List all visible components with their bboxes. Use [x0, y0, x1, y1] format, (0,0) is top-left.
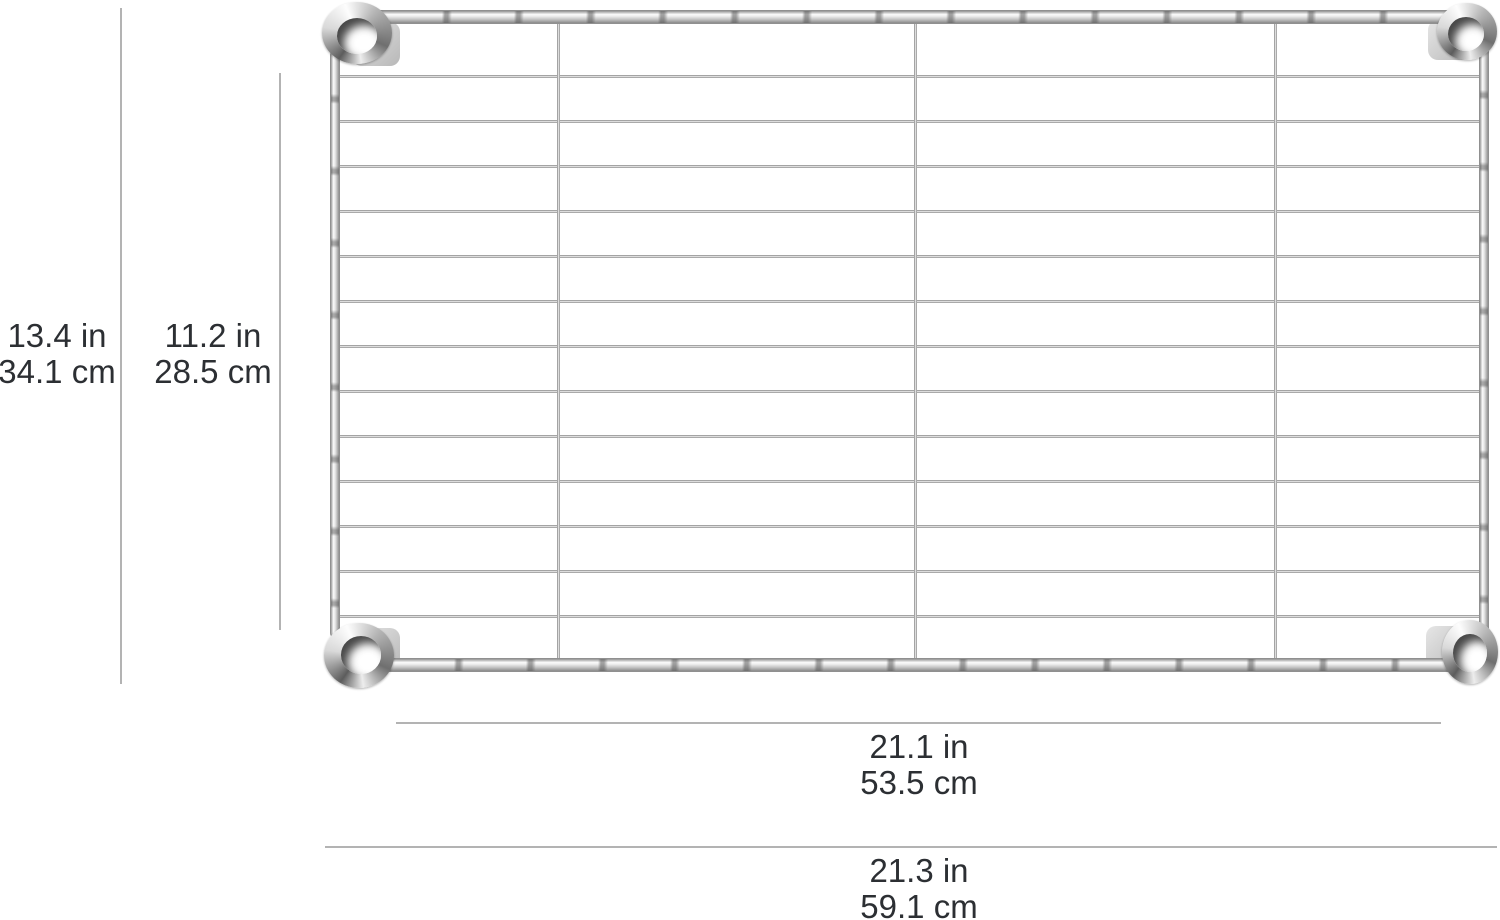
- inner-height-centimeters: 28.5 cm: [145, 354, 281, 390]
- shelf-horizontal-wire: [339, 120, 1481, 123]
- collar-opening: [341, 636, 382, 674]
- corner-collar-bottom-right: [1442, 620, 1498, 684]
- collar-opening: [1448, 17, 1484, 51]
- shelf-horizontal-wire: [339, 525, 1481, 528]
- corner-collar-bottom-left: [324, 623, 394, 688]
- shelf-horizontal-wire: [339, 480, 1481, 483]
- shelf-horizontal-wire: [339, 165, 1481, 168]
- dimension-label-outer-height: 13.4 in 34.1 cm: [0, 318, 126, 390]
- shelf-left-rail: [330, 50, 340, 638]
- dimension-diagram: 13.4 in 34.1 cm 11.2 in 28.5 cm 21.1 in …: [0, 0, 1500, 920]
- shelf-horizontal-wire: [339, 570, 1481, 573]
- shelf-bottom-rail: [352, 658, 1458, 672]
- outer-height-inches: 13.4 in: [0, 318, 126, 354]
- outer-width-inches: 21.3 in: [794, 853, 1044, 889]
- shelf-horizontal-wire: [339, 300, 1481, 303]
- dimension-label-inner-height: 11.2 in 28.5 cm: [145, 318, 281, 390]
- outer-height-centimeters: 34.1 cm: [0, 354, 126, 390]
- inner-height-inches: 11.2 in: [145, 318, 281, 354]
- dimension-line-inner-width: [396, 722, 1441, 724]
- shelf-vertical-wire: [557, 14, 560, 670]
- dimension-label-inner-width: 21.1 in 53.5 cm: [794, 729, 1044, 801]
- dimension-label-outer-width: 21.3 in 59.1 cm: [794, 853, 1044, 920]
- inner-width-centimeters: 53.5 cm: [794, 765, 1044, 801]
- shelf-horizontal-wire: [339, 435, 1481, 438]
- shelf-horizontal-wire: [339, 615, 1481, 618]
- shelf-horizontal-wire: [339, 255, 1481, 258]
- inner-width-inches: 21.1 in: [794, 729, 1044, 765]
- shelf-horizontal-wire: [339, 210, 1481, 213]
- shelf-horizontal-wire: [339, 75, 1481, 78]
- collar-opening: [337, 18, 378, 54]
- outer-width-centimeters: 59.1 cm: [794, 889, 1044, 920]
- shelf-horizontal-wire: [339, 345, 1481, 348]
- collar-opening: [1453, 634, 1487, 672]
- corner-collar-top-left: [322, 2, 392, 64]
- shelf-right-rail: [1479, 46, 1489, 634]
- shelf-vertical-wire: [1274, 14, 1277, 670]
- shelf-horizontal-wire: [339, 390, 1481, 393]
- shelf-vertical-wire: [914, 14, 917, 670]
- corner-collar-top-right: [1437, 3, 1497, 60]
- shelf-top-rail: [340, 10, 1468, 24]
- dimension-line-outer-width: [325, 846, 1497, 848]
